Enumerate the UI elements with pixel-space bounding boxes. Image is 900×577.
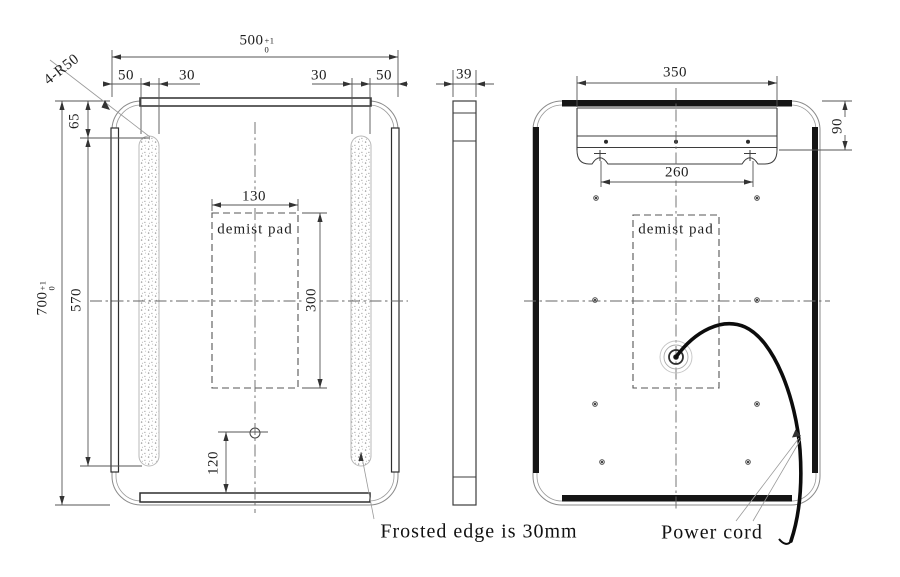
dim-demist-width-label: 130 bbox=[241, 190, 267, 205]
dim-right-margin-label: 50 bbox=[375, 69, 393, 84]
frosted-edge-note: Frosted edge is 30mm bbox=[380, 521, 577, 544]
hanging-hooks bbox=[594, 150, 756, 161]
dim-height-label: 700+10 bbox=[36, 279, 57, 316]
dimension-lines bbox=[50, 50, 852, 521]
led-strip-right-back bbox=[812, 127, 818, 473]
dim-sensor-height-label: 120 bbox=[207, 450, 222, 476]
mirror-outline-back-outer bbox=[533, 101, 820, 505]
led-bar-right-front bbox=[392, 128, 400, 472]
dim-bracket-offset-label: 90 bbox=[831, 117, 846, 135]
power-cord-note: Power cord bbox=[661, 522, 763, 545]
dim-thickness-label: 39 bbox=[455, 68, 473, 83]
centerlines-back bbox=[524, 88, 830, 510]
drawing-canvas bbox=[0, 0, 900, 577]
dim-right-frost-label: 30 bbox=[310, 69, 328, 84]
dim-hook-spacing-label: 260 bbox=[664, 166, 690, 181]
led-bar-top-front bbox=[140, 98, 371, 106]
power-cord-tip bbox=[779, 539, 791, 544]
power-cord bbox=[676, 324, 801, 541]
dim-left-margin-label: 50 bbox=[117, 69, 135, 84]
led-bar-left-front bbox=[111, 128, 119, 472]
mounting-bracket bbox=[577, 108, 777, 164]
led-strip-top-back bbox=[562, 100, 792, 107]
dim-bracket-width-label: 350 bbox=[662, 66, 688, 81]
back-view bbox=[524, 88, 830, 544]
bracket-screw bbox=[604, 140, 608, 144]
side-view bbox=[453, 101, 476, 505]
mirror-technical-drawing: 500+10 50 30 30 50 4-R50 65 570 700+10 1… bbox=[0, 0, 900, 577]
led-strip-left-back bbox=[533, 127, 539, 473]
front-view bbox=[90, 98, 408, 513]
dim-frost-top-label: 65 bbox=[68, 112, 83, 130]
dim-left-frost-label: 30 bbox=[178, 69, 196, 84]
demist-pad-front-label: demist pad bbox=[216, 223, 293, 238]
dim-demist-height-label: 300 bbox=[305, 287, 320, 313]
demist-pad-back-label: demist pad bbox=[637, 223, 714, 238]
leader-lines bbox=[50, 60, 801, 521]
bracket-screw bbox=[746, 140, 750, 144]
mirror-outline-side bbox=[453, 101, 476, 505]
led-strip-bottom-back bbox=[562, 495, 792, 502]
dim-width-label: 500+10 bbox=[238, 34, 275, 55]
dim-frost-length-label: 570 bbox=[70, 287, 85, 313]
